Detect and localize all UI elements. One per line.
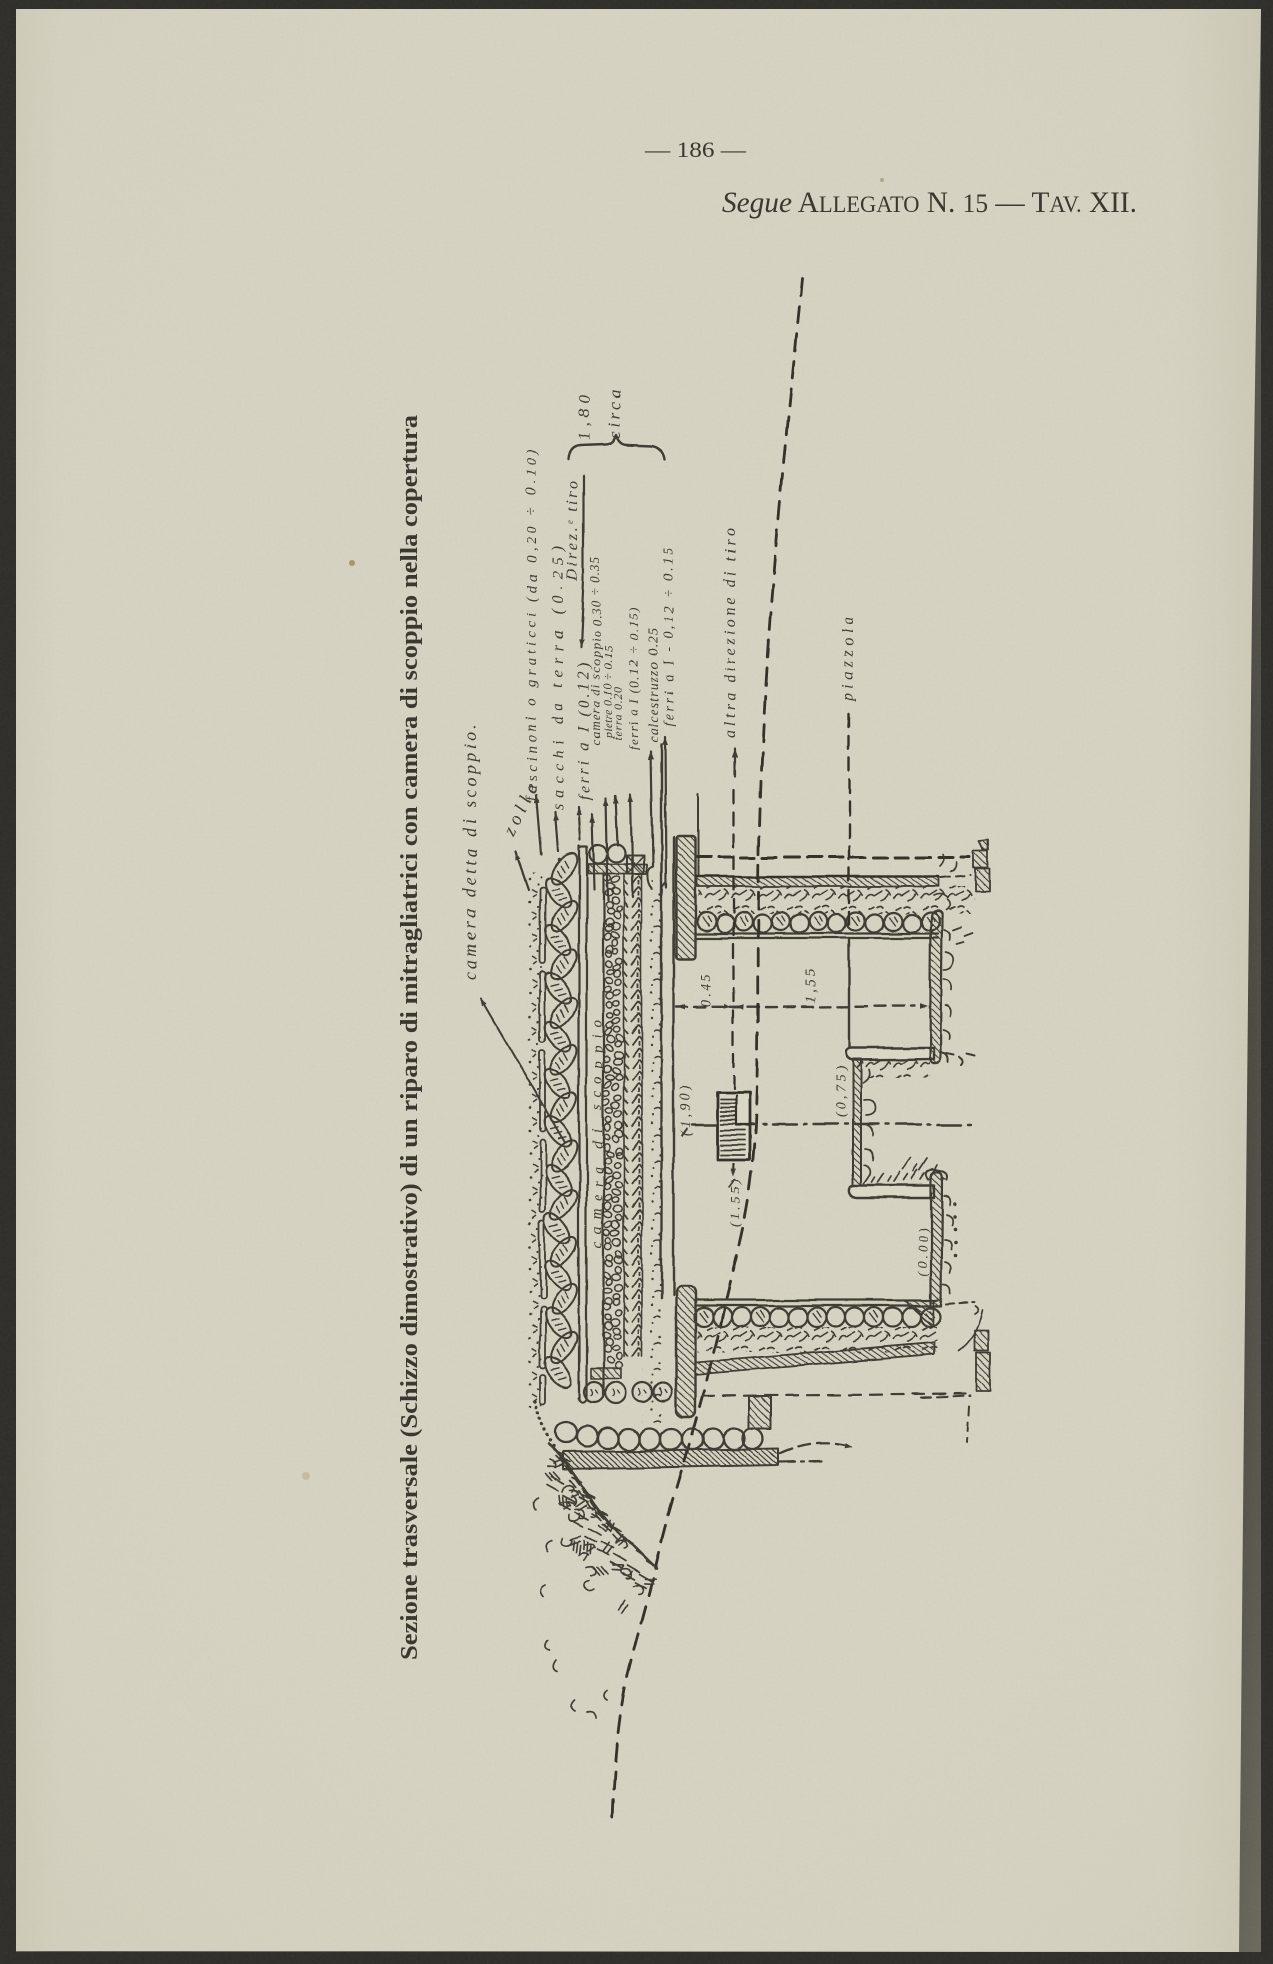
- svg-text:1,55: 1,55: [803, 969, 819, 1004]
- svg-text:1,80: 1,80: [575, 395, 594, 441]
- svg-text:terra 0.20: terra 0.20: [611, 686, 625, 740]
- svg-text:fascinoni o graticci (da 0,20: fascinoni o graticci (da 0,20 ÷ 0.10): [524, 449, 540, 801]
- svg-text:Direz.ᵉ tiro: Direz.ᵉ tiro: [565, 481, 582, 582]
- svg-text:Sezione trasversale (Schizzo d: Sezione trasversale (Schizzo dimostrativ…: [396, 415, 423, 1660]
- svg-text:0.45: 0.45: [699, 974, 714, 1007]
- svg-text:calcestruzzo 0.25: calcestruzzo 0.25: [647, 628, 662, 743]
- svg-text:— 186 —: — 186 —: [644, 137, 747, 162]
- svg-text:ferri a I - 0,12 ÷ 0.15: ferri a I - 0,12 ÷ 0.15: [662, 548, 677, 726]
- svg-text:altra direzione di tiro: altra direzione di tiro: [722, 528, 739, 738]
- svg-text:circa: circa: [605, 390, 624, 438]
